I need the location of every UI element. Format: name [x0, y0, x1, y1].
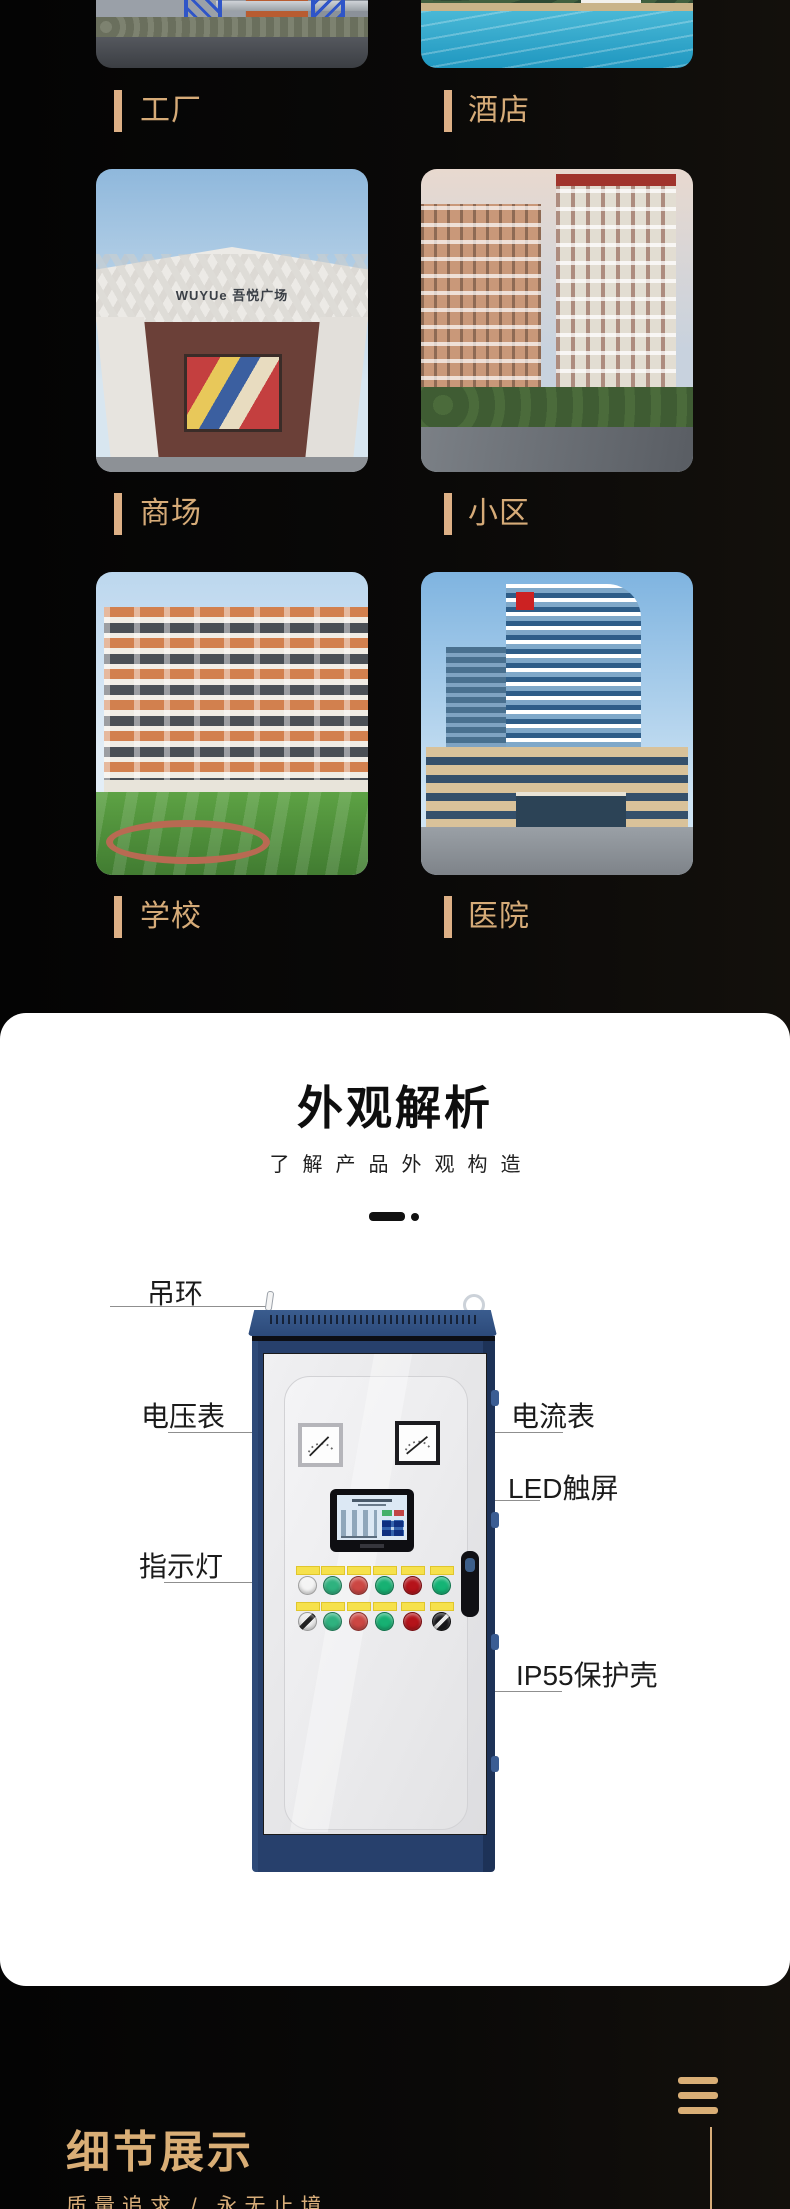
- indicator-tag: [401, 1602, 425, 1611]
- photo-hotel: [421, 0, 693, 68]
- label-bar-factory: [114, 90, 122, 132]
- hosp-plaza: [421, 827, 693, 875]
- cabinet-hinge-3: [491, 1634, 499, 1650]
- hmi-gauge-bars: [341, 1510, 377, 1538]
- photo-school: [96, 572, 368, 875]
- photo-factory: [96, 0, 368, 68]
- indicator-tag: [373, 1602, 397, 1611]
- factory-pipes: [216, 1, 368, 11]
- divider-dash: [369, 1212, 405, 1221]
- label-bar-school: [114, 896, 122, 938]
- hosp-cross: [516, 592, 534, 610]
- push-button-green: [323, 1612, 342, 1631]
- push-button-red: [403, 1612, 422, 1631]
- indicator-light-red: [349, 1576, 368, 1595]
- cabinet-hinge-2: [491, 1512, 499, 1528]
- callout-ip55-shell: IP55保护壳: [516, 1654, 658, 1694]
- label-school: 学校: [140, 896, 202, 938]
- res-roof-band: [556, 174, 676, 186]
- photo-hospital: [421, 572, 693, 875]
- door-handle-keyhole: [465, 1558, 475, 1572]
- mall-sign: WUYUe 吾悦广场: [96, 285, 368, 304]
- callout-indicator-lights: 指示灯: [139, 1545, 223, 1585]
- callout-led-touchscreen: LED触屏: [508, 1467, 618, 1507]
- selector-switch-black: [432, 1612, 451, 1631]
- hmi-header-line: [352, 1499, 392, 1502]
- divider-dot: [411, 1213, 419, 1221]
- label-bar-hospital: [444, 896, 452, 938]
- hosp-entrance: [516, 792, 626, 831]
- indicator-tag: [347, 1566, 371, 1575]
- school-building: [104, 607, 368, 792]
- vertical-accent-line: [710, 2127, 712, 2209]
- indicator-tag: [347, 1602, 371, 1611]
- indicator-tag: [430, 1602, 454, 1611]
- photo-mall: WUYUe 吾悦广场: [96, 169, 368, 472]
- photo-residential: [421, 169, 693, 472]
- cabinet-hinge-1: [491, 1390, 499, 1406]
- res-building-right: [556, 174, 676, 409]
- callout-voltmeter: 电压表: [141, 1395, 225, 1435]
- mall-screen: [184, 354, 282, 432]
- push-button-green: [375, 1612, 394, 1631]
- menu-icon: [678, 2092, 718, 2099]
- ammeter-gauge: [395, 1421, 440, 1465]
- label-mall: 商场: [140, 493, 202, 535]
- label-hospital: 医院: [468, 896, 530, 938]
- hmi-softkeys: [382, 1520, 404, 1536]
- indicator-light-red: [403, 1576, 422, 1595]
- indicator-tag: [321, 1566, 345, 1575]
- factory-shrubs: [96, 17, 368, 39]
- indicator-light-green: [375, 1576, 394, 1595]
- indicator-tag: [373, 1566, 397, 1575]
- voltmeter-gauge: [298, 1423, 343, 1467]
- cabinet-cap-vents: [270, 1315, 476, 1324]
- callout-ammeter: 电流表: [511, 1395, 595, 1435]
- hmi-header-line2: [358, 1504, 386, 1506]
- indicator-light-green: [323, 1576, 342, 1595]
- factory-road: [96, 37, 368, 68]
- detail-subtitle: 质量追求 / 永无止境: [66, 2190, 329, 2209]
- label-hotel: 酒店: [468, 90, 530, 132]
- hmi-status-red: [394, 1510, 404, 1516]
- label-bar-residential: [444, 493, 452, 535]
- res-road: [421, 427, 693, 472]
- menu-icon: [678, 2077, 718, 2084]
- hotel-pool: [421, 11, 693, 68]
- appearance-subtitle: 了解产品外观构造: [0, 1148, 790, 1177]
- indicator-tag: [430, 1566, 454, 1575]
- indicator-tag: [321, 1602, 345, 1611]
- detail-title: 细节展示: [66, 2116, 254, 2180]
- indicator-tag: [401, 1566, 425, 1575]
- label-residential: 小区: [468, 493, 530, 535]
- callout-line-lifting-ring: [110, 1306, 268, 1307]
- application-gallery-section: 工厂 酒店 WUYUe 吾悦广场 商场 小区: [0, 0, 790, 1013]
- mall-ground: [96, 457, 368, 472]
- indicator-light-green: [432, 1576, 451, 1595]
- label-factory: 工厂: [140, 90, 202, 132]
- cabinet-hinge-4: [491, 1756, 499, 1772]
- menu-icon: [678, 2107, 718, 2114]
- res-building-left: [421, 204, 541, 414]
- res-trees: [421, 387, 693, 432]
- appearance-title: 外观解析: [0, 1072, 790, 1138]
- hmi-brand-strip: [360, 1544, 384, 1548]
- label-bar-hotel: [444, 90, 452, 132]
- indicator-light-white: [298, 1576, 317, 1595]
- label-bar-mall: [114, 493, 122, 535]
- product-detail-page: 工厂 酒店 WUYUe 吾悦广场 商场 小区: [0, 0, 790, 2209]
- indicator-tag: [296, 1602, 320, 1611]
- school-track: [106, 820, 270, 864]
- push-button-red: [349, 1612, 368, 1631]
- indicator-tag: [296, 1566, 320, 1575]
- hmi-status-green: [382, 1510, 392, 1516]
- selector-switch: [298, 1612, 317, 1631]
